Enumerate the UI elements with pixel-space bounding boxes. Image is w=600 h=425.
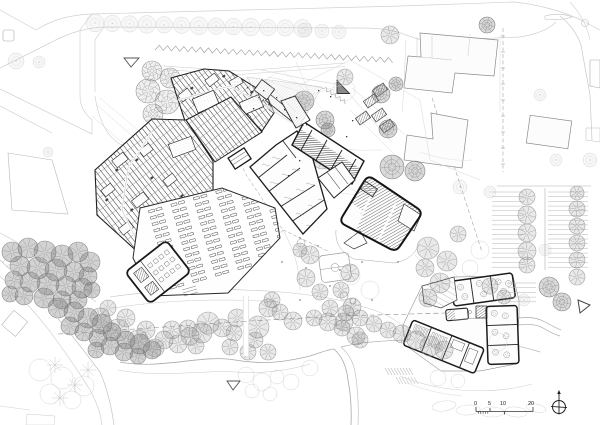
svg-text:10: 10 [500, 401, 506, 407]
svg-text:20: 20 [528, 401, 534, 407]
svg-text:0: 0 [474, 401, 477, 407]
svg-text:5: 5 [488, 401, 491, 407]
